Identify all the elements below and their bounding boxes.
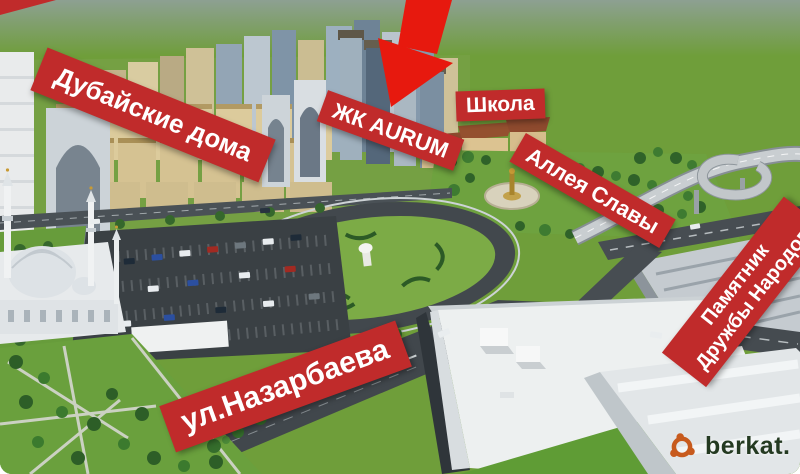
- berkat-watermark-text: berkat.: [705, 432, 790, 461]
- label-school: Школа: [456, 88, 546, 121]
- berkat-logo-icon: [664, 428, 700, 464]
- map-screenshot: Дубайские дома ЖК AURUM Школа Аллея Слав…: [0, 0, 800, 474]
- berkat-watermark: berkat.: [664, 428, 790, 464]
- city-render: [0, 0, 800, 474]
- gothic-towers: [262, 80, 326, 187]
